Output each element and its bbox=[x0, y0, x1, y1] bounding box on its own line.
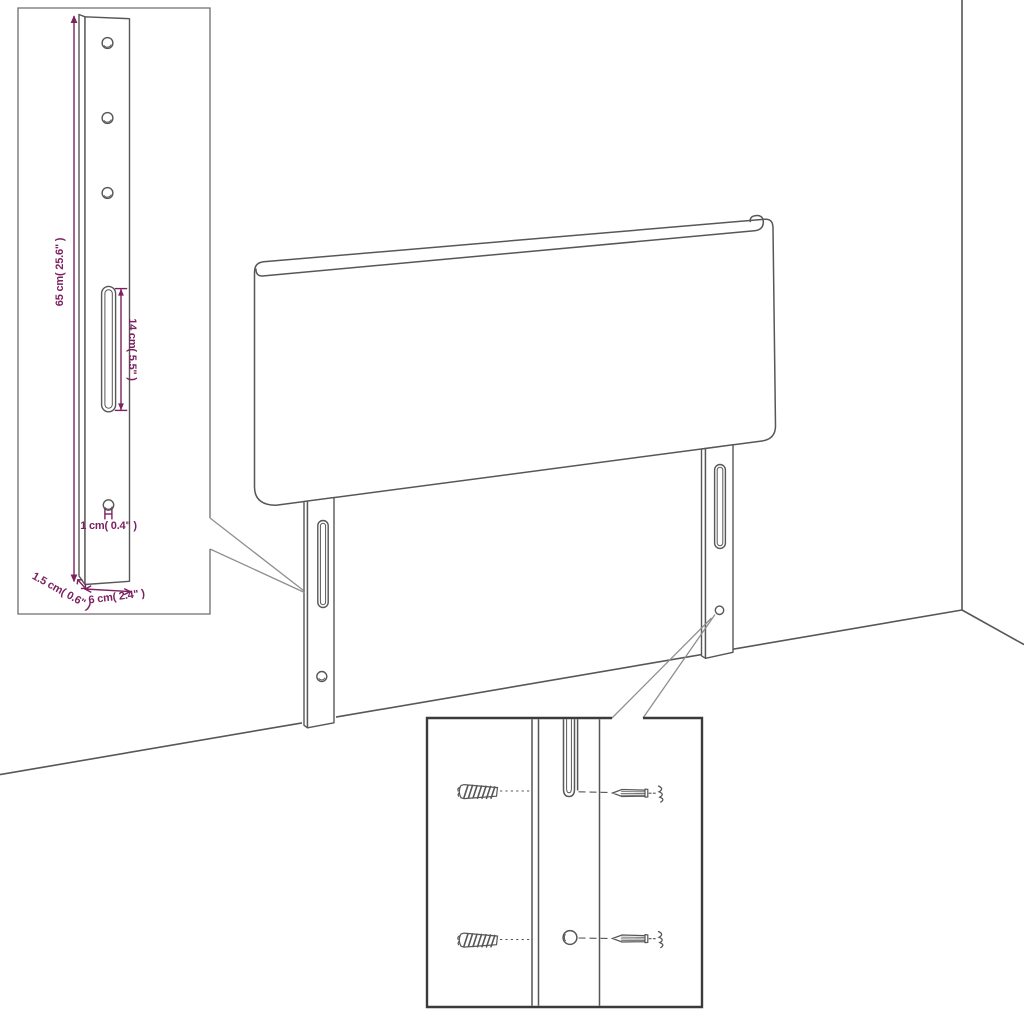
slot-outer bbox=[564, 719, 575, 796]
bracket-side-face bbox=[79, 15, 85, 585]
wall-anchor-icon bbox=[458, 785, 498, 799]
dim-label-total-height: 65 cm( 25.6" ) bbox=[54, 237, 66, 306]
mounting-detail-inset bbox=[427, 718, 702, 1007]
dash-line bbox=[579, 792, 612, 793]
screw-icon bbox=[613, 932, 663, 948]
mounting-inset-border bbox=[427, 718, 702, 1007]
dim-label-width: 6 cm( 2.4" ) bbox=[88, 588, 146, 607]
callout-wedge-left bbox=[210, 518, 305, 593]
callout-wedge-bottom bbox=[612, 615, 715, 719]
dash-line bbox=[579, 938, 612, 939]
callout-line bbox=[210, 549, 305, 593]
product-dimension-diagram: 65 cm( 25.6" ) 14 cm( 5.5" ) 1 cm( 0.4" … bbox=[0, 0, 1024, 1024]
hole-outer bbox=[563, 931, 577, 945]
callout-line bbox=[643, 615, 715, 719]
slot-inner bbox=[567, 719, 572, 793]
headboard bbox=[255, 216, 776, 506]
screw-icon bbox=[613, 786, 663, 802]
headboard-panel bbox=[255, 219, 776, 505]
dim-label-slot: 14 cm( 5.5" ) bbox=[126, 318, 138, 381]
dim-arrow bbox=[71, 15, 78, 23]
floor-line-left bbox=[336, 610, 962, 717]
floor-line-left-continued bbox=[0, 723, 302, 775]
mounting-drawing bbox=[532, 719, 600, 1006]
alignment-dashes bbox=[500, 791, 611, 940]
hole-shade bbox=[564, 934, 565, 941]
bracket-detail-inset: 65 cm( 25.6" ) 14 cm( 5.5" ) 1 cm( 0.4" … bbox=[18, 8, 210, 614]
callout-line bbox=[210, 518, 304, 591]
right-leg-front-face bbox=[706, 445, 734, 659]
dim-label-hole: 1 cm( 0.4" ) bbox=[80, 520, 137, 532]
wall-anchor-icon bbox=[458, 933, 498, 947]
dim-arrow bbox=[71, 575, 78, 583]
bracket-drawing bbox=[79, 15, 130, 585]
left-leg bbox=[304, 498, 334, 728]
floor-line-right bbox=[962, 610, 1024, 645]
